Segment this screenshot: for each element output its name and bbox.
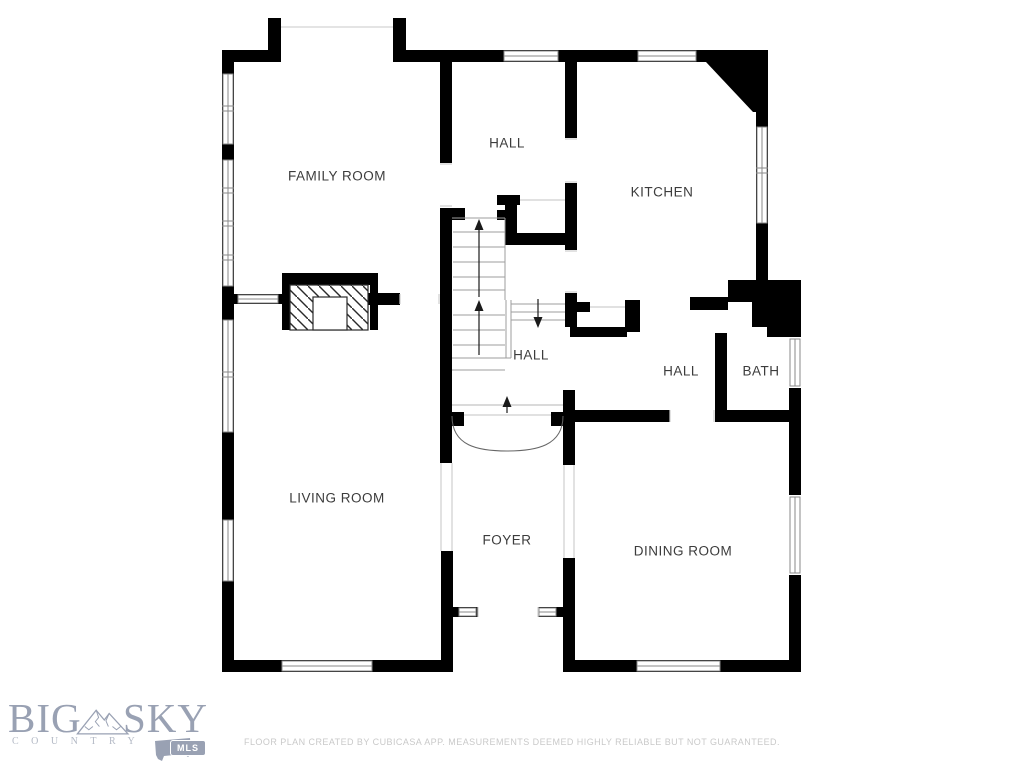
room-label-bath: BATH bbox=[742, 364, 779, 379]
staircase bbox=[452, 218, 565, 405]
room-label-living-room: LIVING ROOM bbox=[289, 491, 385, 506]
room-label-dining-room: DINING ROOM bbox=[634, 544, 733, 559]
mountain-icon bbox=[75, 701, 130, 739]
big-sky-mls-logo: BIG SKY COUNTRY MLS bbox=[8, 698, 208, 762]
logo-word-sky: SKY bbox=[123, 698, 208, 739]
floor-plan-drawing bbox=[0, 0, 1024, 768]
room-label-hall-right: HALL bbox=[663, 364, 699, 379]
room-label-family-room: FAMILY ROOM bbox=[288, 169, 386, 184]
room-label-kitchen: KITCHEN bbox=[631, 185, 694, 200]
floor-plan-page: FAMILY ROOM HALL KITCHEN HALL HALL BATH … bbox=[0, 0, 1024, 768]
room-label-foyer: FOYER bbox=[482, 533, 531, 548]
fireplace bbox=[290, 285, 368, 330]
room-label-hall-upper: HALL bbox=[489, 136, 525, 151]
stair-direction-arrows bbox=[475, 219, 543, 413]
logo-wordmark: BIG SKY bbox=[8, 698, 208, 739]
foyer-arch bbox=[452, 416, 563, 451]
disclaimer-text: FLOOR PLAN CREATED BY CUBICASA APP. MEAS… bbox=[0, 737, 1024, 747]
logo-word-big: BIG bbox=[8, 698, 82, 739]
room-label-hall-stairs: HALL bbox=[513, 348, 549, 363]
